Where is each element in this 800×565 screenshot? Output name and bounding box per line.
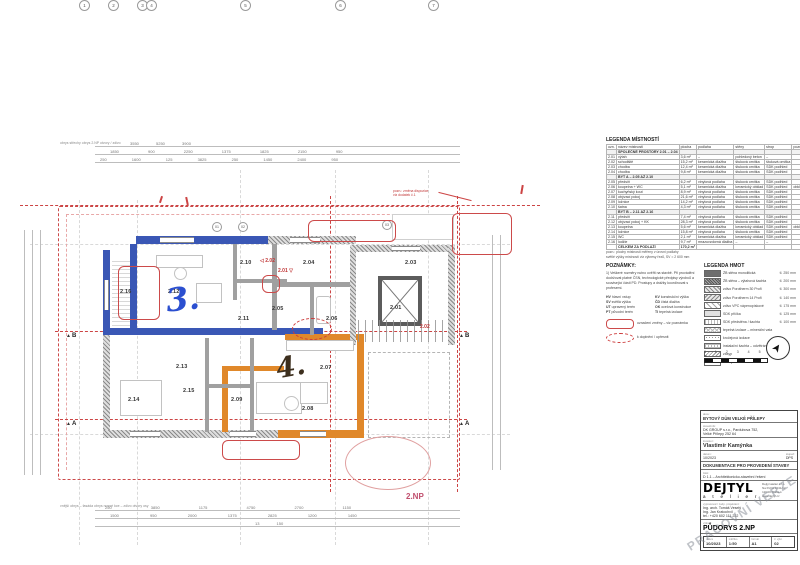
floor-label: 2.NP [406, 492, 424, 501]
footer-cell: měřítko 1:50 [727, 537, 750, 547]
dim-chain [95, 146, 460, 147]
elevator-shaft [378, 276, 422, 326]
date-stage-row: datum:10/2023 stupeň:DPS [701, 451, 797, 462]
material-row: ŽB stěna – výtahová šachta tl. 200 mm [704, 278, 796, 285]
project-row: akce: BYTOVÝ DŮM VELKÉ PŘÍLEPY [701, 411, 797, 423]
grid-bubble: 7 [428, 0, 439, 11]
dim-numbers: 1500 950 2000 1375 2825 1200 1450 [110, 513, 357, 518]
dim-numbers: 13 150 [255, 521, 283, 526]
room-label: 2.13 [176, 364, 188, 370]
wall-segment [233, 244, 237, 300]
material-row: zdivo VPC vápenopískové tl. 175 mm [704, 302, 796, 309]
material-swatch [704, 327, 721, 334]
entry-vestibule-outline [392, 214, 454, 240]
wall-segment [209, 384, 252, 388]
markup-leader-line [438, 192, 471, 201]
scale-bar-numbers: 0 1 2 3 4 5 m [704, 350, 768, 358]
dim-chain [40, 230, 41, 475]
drawing-title-row: výkres: PŮDORYS 2.NP [701, 520, 797, 534]
dim-chain [500, 235, 501, 470]
revision-rect-swatch [606, 319, 634, 329]
dim-numbers: 1850 900 2250 1375 1825 2150 950 [110, 149, 343, 154]
footer-cell: formát A1 [750, 537, 773, 547]
section-marker-b-right: B [459, 333, 469, 339]
room-legend-row: CELKEM ZA PODLAŽÍ 170,2 m² [607, 245, 800, 250]
section-marker-a-left: A [66, 421, 76, 427]
wall-segment [103, 335, 110, 437]
dim-chain [32, 230, 33, 475]
dim-numbers: 250 3850 1175 4750 2700 1150 [105, 505, 351, 510]
handwritten-note-3: 3. [164, 278, 201, 319]
room-label: 2.14 [128, 397, 140, 403]
room-legend-title: LEGENDA MÍSTNOSTÍ [606, 137, 794, 143]
material-swatch [704, 294, 721, 301]
markup-note: pozn.: změna dispoziceviz dodatek č.1 [393, 189, 428, 198]
title-block-footer: datum 10/2023 měřítko 1:50 formát A1 č. … [703, 536, 795, 548]
wall-segment [357, 334, 364, 438]
markup-scribble [520, 185, 524, 194]
grid-bubble: 4 [146, 0, 157, 11]
room-legend-row: 2.07 kuchyňský kout 8,9 m² vinylová podl… [607, 190, 800, 195]
stair-treads [358, 320, 448, 342]
material-row: SDK předstěna / šachta tl. 100 mm [704, 319, 796, 326]
material-row: tepelná izolace – minerální vata [704, 327, 796, 334]
wall-segment [136, 236, 268, 244]
studio-logo: DEJTYL a t e l i e r [703, 482, 759, 499]
dim-chain [95, 154, 460, 155]
material-swatch [704, 278, 721, 285]
room-label: 2.07 [320, 365, 332, 371]
part-row: část: D 1.1 – Architektonicko-stavební ř… [701, 470, 797, 481]
room-legend-table: ozn. název místnosti plocha podlaha stěn… [606, 144, 800, 250]
window-opening [392, 246, 420, 251]
abbr-item: PT původní terén [606, 310, 649, 315]
investor-name: Vlastimír Kamýnka [703, 443, 752, 449]
room-legend: LEGENDA MÍSTNOSTÍ ozn. název místnosti p… [606, 137, 794, 260]
dim-chain [492, 235, 493, 470]
scale-bar: 0 1 2 3 4 5 m [704, 350, 768, 363]
designer-line: tel.: +420 602 111 222 [703, 514, 795, 518]
material-row: zdivo Porotherm 30 Profi tl. 300 mm [704, 286, 796, 293]
scale-bar-graphic [704, 358, 768, 363]
abbr-item: TI tepelná izolace [655, 310, 698, 315]
wall-segment [272, 282, 356, 287]
room-legend-footnotes: pozn.: plochy místností měřeny v úrovni … [606, 250, 794, 260]
markup-ref-2-02b: 2.02 [420, 324, 430, 330]
stage-row: DOKUMENTACE PRO PROVEDENÍ STAVBY [701, 462, 797, 470]
grid-bubble: 5 [240, 0, 251, 11]
wall-segment [448, 245, 455, 345]
drawing-sheet: obrys střechy obrys 2.NP otvory / zdivo … [0, 0, 800, 565]
revision-mark-rect [222, 440, 300, 460]
window-tag: 02 [238, 222, 248, 232]
room-legend-row: 2.12 obývací pokoj + KK 28,3 m² vinylová… [607, 220, 800, 225]
room-legend-header-row: ozn. název místnosti plocha podlaha stěn… [607, 145, 800, 150]
room-label: 2.01 [390, 305, 402, 311]
material-swatch [704, 286, 721, 293]
notes-panel: POZNÁMKY: 1) Veškeré rozměry nutno ověři… [606, 263, 698, 343]
north-arrow-icon: ➤ [771, 341, 785, 355]
material-swatch [704, 310, 721, 317]
mark-legend-rect: označení změny – viz poznámka [606, 319, 698, 329]
dining-table-symbol [196, 283, 222, 303]
room-label: 2.15 [183, 388, 195, 394]
elevator-cross-icon [382, 280, 418, 322]
client-row: stavebník: DK GROUP s.r.o., Pardubova 75… [701, 423, 797, 438]
material-swatch [704, 335, 721, 342]
room-label: 2.04 [303, 260, 315, 266]
material-row: ŽB stěna monolitická tl. 250 mm [704, 270, 796, 277]
window-tag: 01 [212, 222, 222, 232]
revision-cloud [292, 318, 332, 340]
col-header: poznámka [792, 145, 800, 150]
section-marker-a-right: A [459, 421, 469, 427]
room-label: 2.09 [231, 397, 243, 403]
material-swatch [704, 270, 721, 277]
project-name: BYTOVÝ DŮM VELKÉ PŘÍLEPY [703, 416, 765, 421]
footer-cell: č. výkr. 02 [772, 537, 794, 547]
revision-cloud-swatch [606, 333, 634, 343]
markup-ref-2-01: 2.01 ▽ [278, 268, 293, 274]
material-swatch [704, 343, 721, 350]
abbreviations: HV hlavní vstupSV světlá výškaUT upraven… [606, 295, 698, 315]
wall-segment [222, 366, 228, 432]
window-opening [130, 431, 160, 437]
mark-legend-cloud: k doplnění / upřesnit [606, 333, 698, 343]
notes-title: POZNÁMKY: [606, 263, 698, 270]
note-text: 1) Veškeré rozměry nutno ověřit na stavb… [606, 271, 698, 291]
drawing-title: PŮDORYS 2.NP [703, 525, 795, 532]
window-opening [230, 431, 256, 437]
dim-numbers: 3550 5250 3900 [130, 141, 191, 146]
material-swatch [704, 302, 721, 309]
table-symbol [174, 267, 187, 280]
handwritten-note-4: 4. [273, 348, 308, 386]
revision-mark-rect [118, 266, 160, 320]
revision-mark-rect [308, 220, 396, 242]
window-opening [300, 431, 326, 437]
room-label: 2.10 [240, 260, 252, 266]
material-swatch [704, 319, 721, 326]
wall-segment [350, 245, 356, 345]
markup-ref-2-02: ◁ 2.02 [260, 258, 275, 264]
room-legend-row: 2.08 obývací pokoj 21,6 m² vinylová podl… [607, 195, 800, 200]
materials-title: LEGENDA HMOT [704, 263, 796, 269]
bed-symbol [120, 380, 162, 416]
grid-bubble: 1 [79, 0, 90, 11]
studio-address: Dejtyl atelier s.r.o.Na Poříčí 1041/1211… [762, 482, 785, 498]
dim-chain [95, 518, 460, 519]
revision-mark-rect [452, 213, 512, 255]
logo-row: DEJTYL a t e l i e r Dejtyl atelier s.r.… [701, 481, 797, 501]
room-label: 2.05 [272, 306, 284, 312]
room-label: 2.08 [302, 406, 314, 412]
revision-ellipse [345, 436, 431, 490]
room-label: 2.11 [238, 316, 249, 322]
terrace-outline [368, 352, 450, 438]
investor-row: investor: Vlastimír Kamýnka [701, 438, 797, 451]
dim-chain [95, 162, 460, 163]
dim-chain [95, 510, 460, 511]
dining-table-symbol [300, 382, 328, 404]
title-block: akce: BYTOVÝ DŮM VELKÉ PŘÍLEPY stavebník… [700, 410, 798, 551]
material-row: zdivo Porotherm 14 Profi tl. 140 mm [704, 294, 796, 301]
window-opening [104, 280, 109, 310]
grid-bubble: 2 [108, 0, 119, 11]
room-label: 2.03 [405, 260, 417, 266]
grid-bubble: 6 [335, 0, 346, 11]
markup-scribble [159, 196, 163, 203]
designer-row: vypracoval / zodp. projektant: Ing. arch… [701, 501, 797, 520]
table-symbol [284, 396, 299, 411]
dim-numbers: 250 1600 125 3825 250 1450 2400 950 [100, 157, 338, 162]
room-legend-row: 2.06 koupelna + WC 5,1 m² keramická dlaž… [607, 185, 800, 190]
dim-chain [24, 230, 25, 475]
revision-mark-rect [262, 275, 280, 293]
footer-cell: datum 10/2023 [704, 537, 727, 547]
room-label: 2.06 [326, 316, 338, 322]
section-marker-b-left: B [66, 333, 76, 339]
markup-scribble [185, 197, 189, 205]
dim-chain [95, 526, 460, 527]
material-row: SDK příčka tl. 125 mm [704, 310, 796, 317]
markup-boundary-inner [66, 214, 67, 470]
north-compass: ➤ [766, 336, 790, 360]
window-opening [160, 237, 194, 243]
